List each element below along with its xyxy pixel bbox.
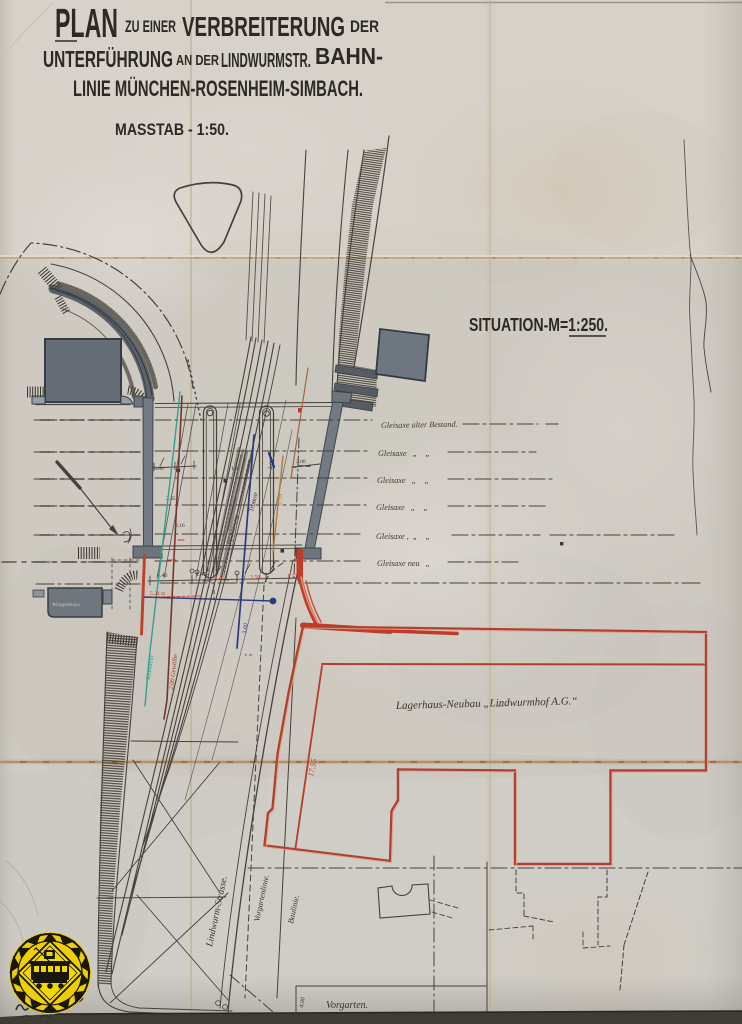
svg-text:Gleisaxe alter Bestand.: Gleisaxe alter Bestand.	[381, 420, 458, 430]
svg-text:3.80: 3.80	[154, 466, 164, 472]
svg-text:1.40: 1.40	[196, 572, 207, 578]
svg-text:2.50: 2.50	[250, 575, 261, 581]
svg-text:BAHN-: BAHN-	[315, 43, 383, 69]
svg-text:AN DER: AN DER	[176, 52, 219, 69]
svg-text:PLAN: PLAN	[55, 0, 118, 46]
svg-text:Gleisaxe „ „: Gleisaxe „ „	[377, 476, 429, 485]
svg-text:5.34 m: 5.34 m	[150, 591, 166, 597]
svg-text:3.00: 3.00	[296, 459, 306, 465]
svg-text:Gleisaxe „ „: Gleisaxe „ „	[378, 449, 430, 458]
svg-text:UNTERFÜHRUNG: UNTERFÜHRUNG	[43, 46, 173, 72]
svg-text:MASSTAB - 1:50.: MASSTAB - 1:50.	[115, 121, 229, 139]
svg-text:Gleisaxe neu „: Gleisaxe neu „	[377, 559, 430, 568]
svg-text:Gleisaxe „ „: Gleisaxe „ „	[376, 503, 428, 512]
svg-text:LINIE MÜNCHEN-ROSENHEIM-SIMBAC: LINIE MÜNCHEN-ROSENHEIM-SIMBACH.	[73, 76, 363, 101]
svg-text:DER: DER	[350, 17, 379, 36]
svg-text:LINDWURMSTR.: LINDWURMSTR.	[221, 50, 311, 72]
svg-text:Waagenhaus: Waagenhaus	[52, 602, 80, 608]
svg-text:1.8: 1.8	[231, 466, 238, 472]
svg-text:ZU EINER: ZU EINER	[125, 17, 176, 36]
svg-text:Vorgarten.: Vorgarten.	[326, 1000, 368, 1011]
svg-text:4.40: 4.40	[214, 576, 225, 582]
svg-text:× ≈: × ≈	[244, 653, 253, 659]
svg-text:1.13: 1.13	[287, 574, 298, 580]
svg-text:SITUATION-M=1:250.: SITUATION-M=1:250.	[469, 315, 608, 335]
svg-text:Gleisaxe , „ „: Gleisaxe , „ „	[376, 532, 430, 541]
svg-text:VERBREITERUNG: VERBREITERUNG	[182, 11, 345, 42]
